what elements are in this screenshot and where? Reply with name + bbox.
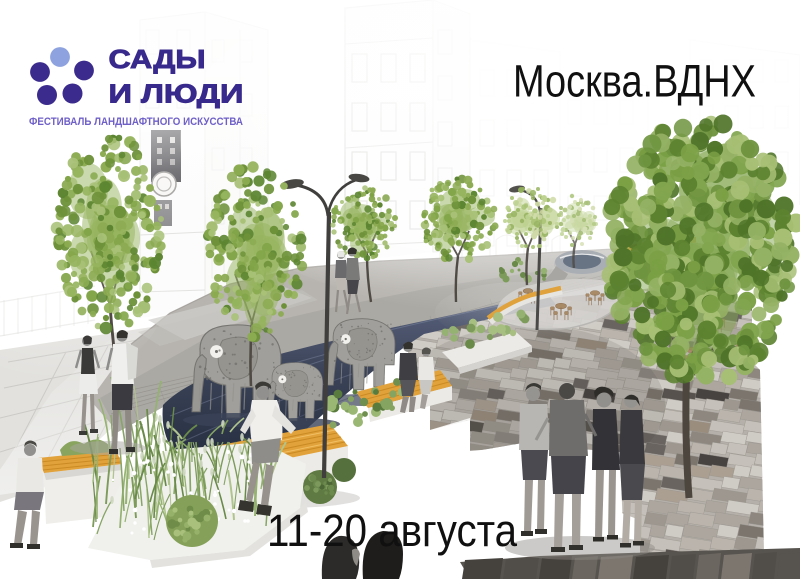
svg-text:И ЛЮДИ: И ЛЮДИ [109, 79, 244, 109]
svg-text:Москва.ВДНХ: Москва.ВДНХ [513, 56, 756, 107]
svg-text:САДЫ: САДЫ [109, 44, 206, 74]
svg-text:ФЕСТИВАЛЬ ЛАНДШАФТНОГО ИСКУССТ: ФЕСТИВАЛЬ ЛАНДШАФТНОГО ИСКУССТВА [29, 116, 243, 128]
svg-text:11-20 августа: 11-20 августа [267, 505, 518, 556]
